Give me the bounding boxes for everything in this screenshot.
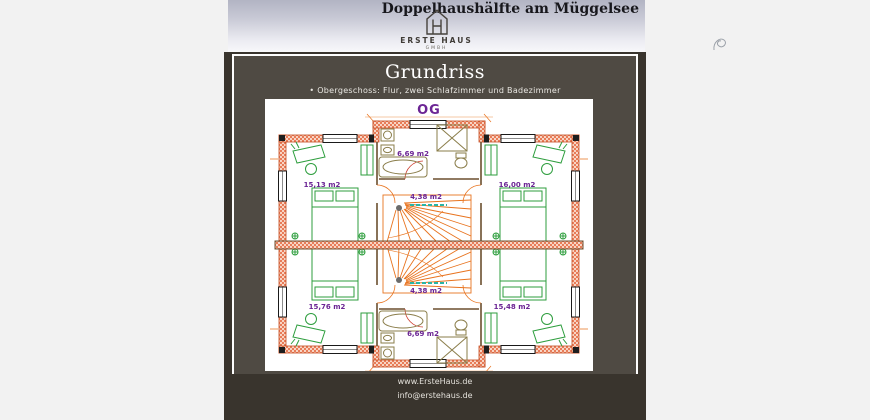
room-label-top-hall: 4,38 m2: [410, 193, 442, 201]
room-label-top-right: 16,00 m2: [499, 181, 536, 189]
room-label-bottom-hall: 4,38 m2: [410, 287, 442, 295]
room-label-top-bath: 6,69 m2: [397, 150, 429, 158]
logo-suffix: GMBH: [382, 46, 492, 51]
company-logo: ERSTE HAUS GMBH: [382, 9, 492, 51]
footer-website: www.ErsteHaus.de: [224, 377, 646, 386]
decorative-curl-icon: [712, 36, 730, 52]
card-footer: www.ErsteHaus.de info@erstehaus.de: [224, 374, 646, 400]
page-background: Doppelhaushälfte am Müggelsee ERSTE HAUS…: [0, 0, 870, 420]
floorplan-unit-geometry: [270, 114, 588, 245]
content-card: Grundriss • Obergeschoss: Flur, zwei Sch…: [224, 52, 646, 420]
header-band: Doppelhaushälfte am Müggelsee ERSTE HAUS…: [228, 0, 645, 54]
house-logo-icon: [425, 9, 449, 35]
card-title: Grundriss: [234, 61, 636, 83]
card-panel: Grundriss • Obergeschoss: Flur, zwei Sch…: [232, 54, 638, 374]
party-wall: [275, 241, 583, 249]
room-label-bottom-bath: 6,69 m2: [407, 330, 439, 338]
floorplan-image: OG: [265, 99, 593, 371]
card-subtitle: • Obergeschoss: Flur, zwei Schlafzimmer …: [234, 86, 636, 95]
floorplan-svg: OG: [265, 99, 593, 371]
room-label-top-left: 15,13 m2: [304, 181, 341, 189]
logo-text: ERSTE HAUS: [382, 36, 492, 45]
room-label-bottom-right: 15,48 m2: [494, 303, 531, 311]
floor-label: OG: [417, 103, 441, 118]
room-label-bottom-left: 15,76 m2: [309, 303, 346, 311]
footer-email: info@erstehaus.de: [224, 391, 646, 400]
